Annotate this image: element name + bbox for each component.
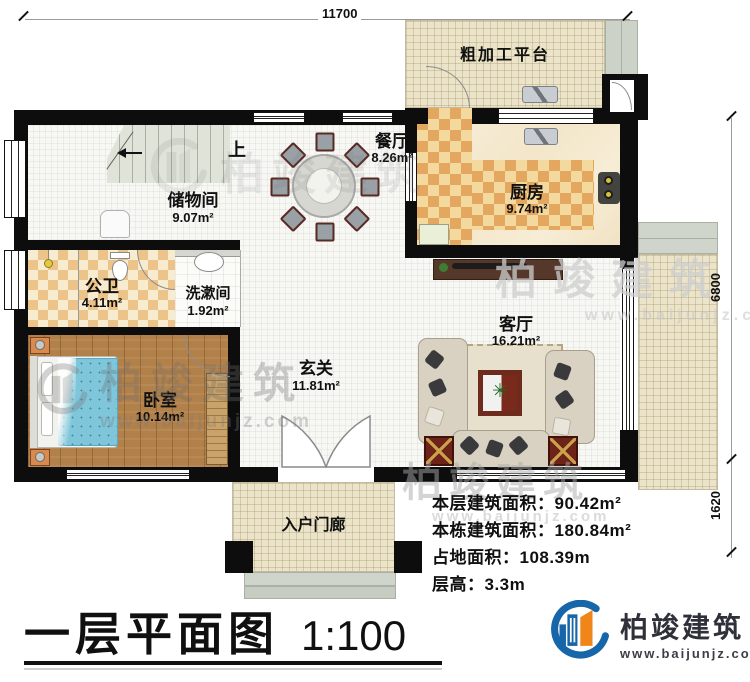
porch-step-1: [244, 572, 396, 586]
wall-bottom-door-left: [240, 467, 278, 482]
nightstand-lamp: [35, 452, 45, 462]
sofa-pillow: [552, 417, 572, 437]
bed-sheet-fold: [58, 358, 76, 446]
room-area-bathroom: 4.11m²: [72, 296, 132, 310]
window: [4, 140, 26, 218]
dimension-line-right: [731, 118, 732, 558]
room-label-bedroom: 卧室: [125, 392, 195, 410]
room-area-storage: 9.07m²: [158, 211, 228, 225]
dining-table-top: [306, 168, 342, 204]
bed-pillow: [41, 362, 53, 396]
tv-plant: [439, 263, 448, 272]
stat-floor-area: 本层建筑面积：90.42m²: [432, 490, 631, 517]
window: [498, 108, 594, 124]
bedroom-dresser: [206, 373, 228, 465]
dimension-top-value: 11700: [318, 6, 361, 21]
window: [456, 469, 626, 480]
brand-name: 柏竣建筑: [620, 606, 750, 646]
stove-burner: [604, 190, 613, 199]
stair-arrowhead-icon: [117, 148, 126, 158]
stat-building-area: 本栋建筑面积：180.84m²: [432, 517, 631, 544]
room-label-dining: 餐厅: [362, 133, 422, 151]
stats-block: 本层建筑面积：90.42m² 本栋建筑面积：180.84m² 占地面积：108.…: [432, 490, 631, 598]
brand-logo-icon: [540, 600, 612, 666]
room-label-porch: 入户门廊: [256, 518, 371, 535]
stat-label: 本栋建筑面积：: [432, 521, 555, 540]
room-area-washroom: 1.92m²: [176, 304, 240, 318]
drawing-title: 一层平面图 1:100: [24, 598, 406, 664]
room-area-kitchen: 9.74m²: [497, 202, 557, 216]
window: [66, 469, 190, 480]
kitchen-sink: [524, 128, 558, 145]
drawing-scale: 1:100: [301, 612, 406, 660]
room-label-hall: 玄关: [284, 360, 348, 378]
room-area-living: 16.21m²: [484, 334, 548, 348]
stat-floor-height: 层高：3.3m: [432, 571, 631, 598]
brand-url: www.baijunjz.com: [620, 646, 750, 661]
dining-chair: [343, 205, 370, 232]
window: [253, 112, 305, 123]
platform-steps: [605, 20, 638, 82]
wall-living-east: [620, 258, 634, 268]
side-table: [548, 436, 578, 466]
entrance-double-door: [278, 414, 374, 470]
dimension-right-lower-value: 1620: [708, 487, 723, 524]
bed-pillow: [41, 402, 53, 436]
room-label-living: 客厅: [486, 316, 546, 334]
room-label-storage: 储物间: [148, 192, 238, 210]
dining-chair: [361, 178, 380, 197]
stat-value: 3.3m: [485, 575, 526, 594]
washroom-basin: [194, 252, 224, 272]
title-underline-shadow: [24, 668, 442, 670]
stair-up-label: 上: [226, 141, 248, 160]
wall-tv: [405, 245, 638, 258]
room-label-bathroom: 公卫: [72, 278, 132, 296]
wall-bathroom-bottom: [14, 327, 240, 335]
nightstand-lamp: [35, 340, 45, 350]
porch-column: [394, 541, 422, 573]
brand-block: 柏竣建筑 www.baijunjz.com: [540, 600, 750, 666]
wall-bathroom-top: [14, 240, 240, 250]
room-area-dining: 8.26m²: [362, 151, 422, 165]
room-area-hall: 11.81m²: [282, 379, 350, 393]
toilet-tank: [110, 252, 130, 259]
stat-value: 180.84m²: [555, 521, 632, 540]
dining-chair: [316, 223, 335, 242]
platform-sink: [522, 86, 558, 103]
room-label-kitchen: 厨房: [495, 184, 559, 202]
floor-plan-canvas: ✳ 储物间 9.07m² 餐厅 8.26m² 厨房 9.74m² 粗加: [0, 0, 750, 682]
wall-kitchen-top: [417, 108, 428, 124]
stat-value: 108.39m: [520, 548, 591, 567]
wall-kitchen-top: [472, 108, 498, 124]
room-label-platform: 粗加工平台: [430, 48, 580, 65]
wall-kitchen-right: [620, 108, 638, 258]
stat-label: 层高：: [432, 575, 485, 594]
coffee-table-plant: ✳: [490, 382, 510, 402]
terrace-steps: [638, 222, 718, 254]
side-table: [424, 436, 454, 466]
bath-light: [44, 259, 53, 268]
stat-label: 占地面积：: [432, 548, 520, 567]
porch-column: [225, 541, 253, 573]
tv-screen: [452, 263, 527, 269]
kitchen-fridge: [419, 224, 449, 245]
room-label-washroom: 洗漱间: [172, 286, 244, 302]
stat-land-area: 占地面积：108.39m: [432, 544, 631, 571]
stat-value: 90.42m²: [555, 494, 622, 513]
drawing-title-text: 一层平面图: [24, 598, 279, 664]
bath-light-cord: [48, 250, 49, 259]
terrace-floor: [638, 254, 718, 490]
dimension-right-upper-value: 6800: [708, 269, 723, 306]
stat-label: 本层建筑面积：: [432, 494, 555, 513]
dining-chair: [271, 178, 290, 197]
dining-chair: [316, 133, 335, 152]
stove-burner: [604, 176, 613, 185]
room-area-bedroom: 10.14m²: [122, 410, 198, 424]
window: [342, 112, 393, 123]
title-underline: [24, 661, 442, 665]
window: [4, 250, 26, 310]
water-heater: [100, 210, 130, 238]
stair-direction-line: [126, 152, 142, 154]
window: [622, 268, 634, 432]
bed-headboard: [30, 356, 38, 448]
